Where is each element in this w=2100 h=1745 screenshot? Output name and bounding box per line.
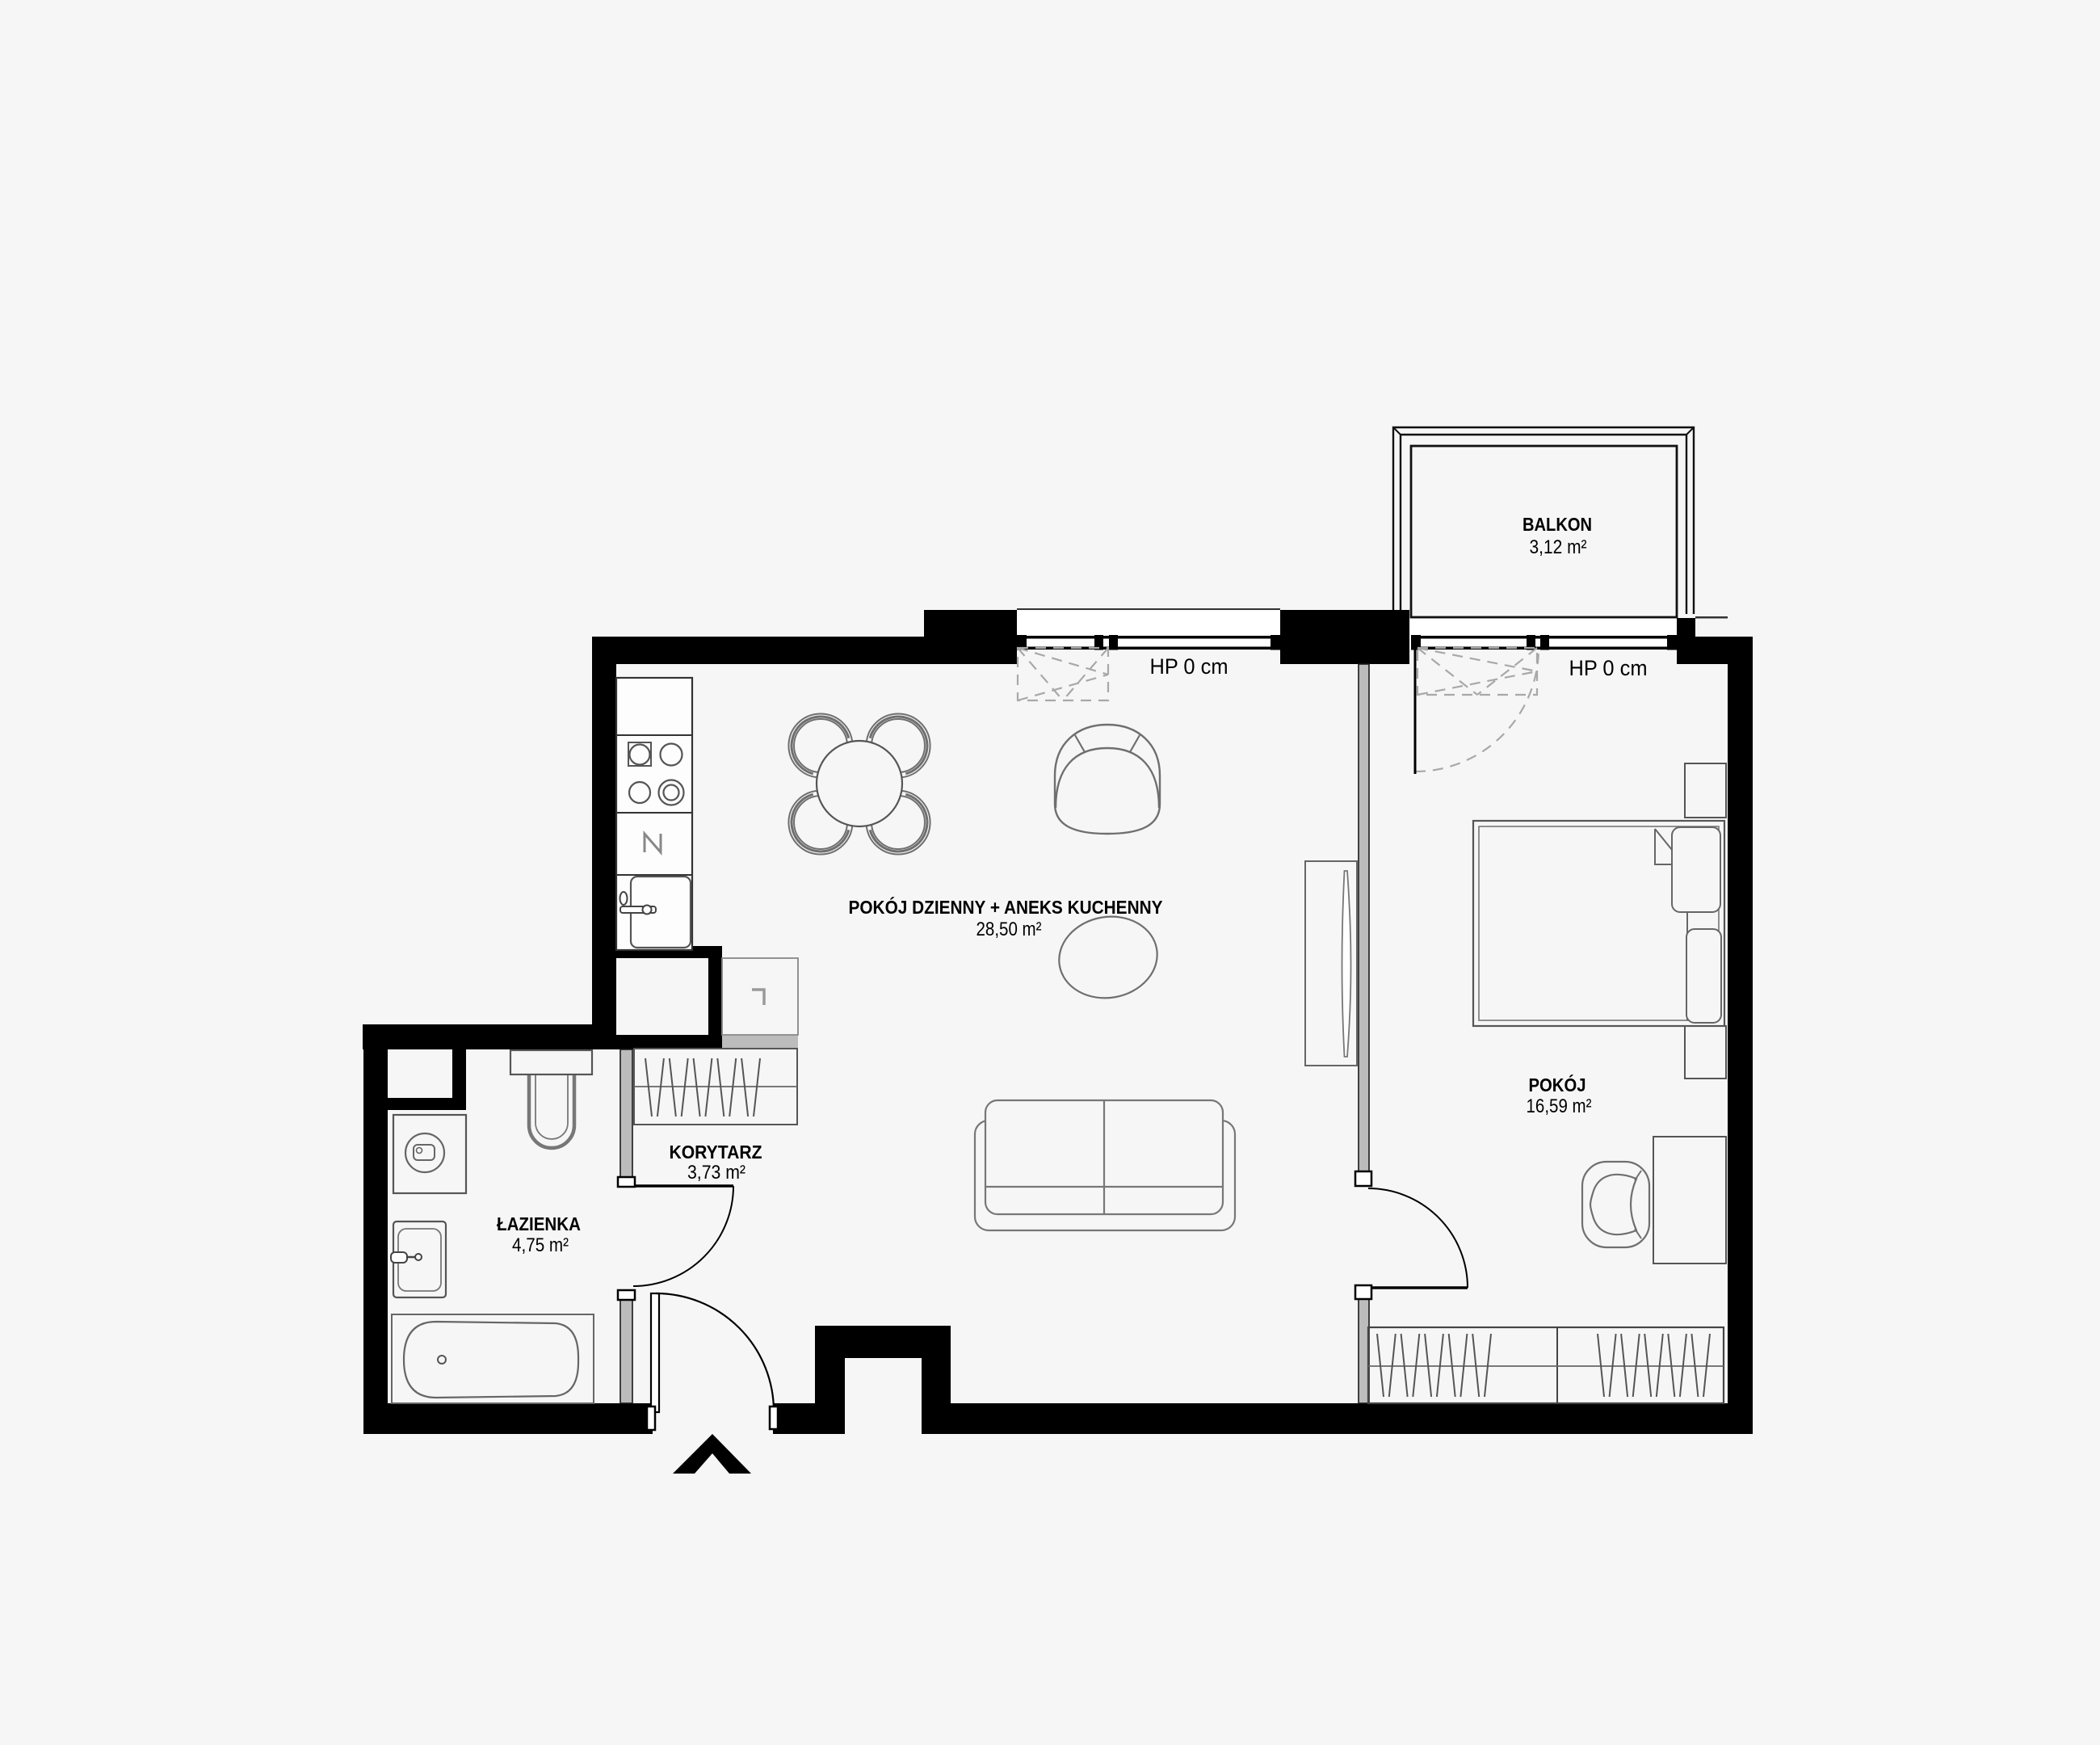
- svg-text:ŁAZIENKA: ŁAZIENKA: [497, 1213, 581, 1234]
- svg-text:BALKON: BALKON: [1522, 514, 1592, 535]
- svg-text:3,12 m²: 3,12 m²: [1530, 536, 1587, 558]
- svg-text:4,75 m²: 4,75 m²: [512, 1234, 569, 1256]
- svg-text:POKÓJ DZIENNY + ANEKS KUCHENNY: POKÓJ DZIENNY + ANEKS KUCHENNY: [849, 896, 1163, 918]
- svg-text:KORYTARZ: KORYTARZ: [670, 1142, 762, 1163]
- svg-text:3,73 m²: 3,73 m²: [687, 1162, 745, 1184]
- svg-text:POKÓJ: POKÓJ: [1529, 1074, 1586, 1095]
- svg-text:16,59 m²: 16,59 m²: [1527, 1095, 1592, 1117]
- svg-text:HP 0 cm: HP 0 cm: [1150, 654, 1228, 679]
- svg-text:HP 0 cm: HP 0 cm: [1569, 656, 1648, 680]
- svg-text:28,50 m²: 28,50 m²: [976, 919, 1042, 940]
